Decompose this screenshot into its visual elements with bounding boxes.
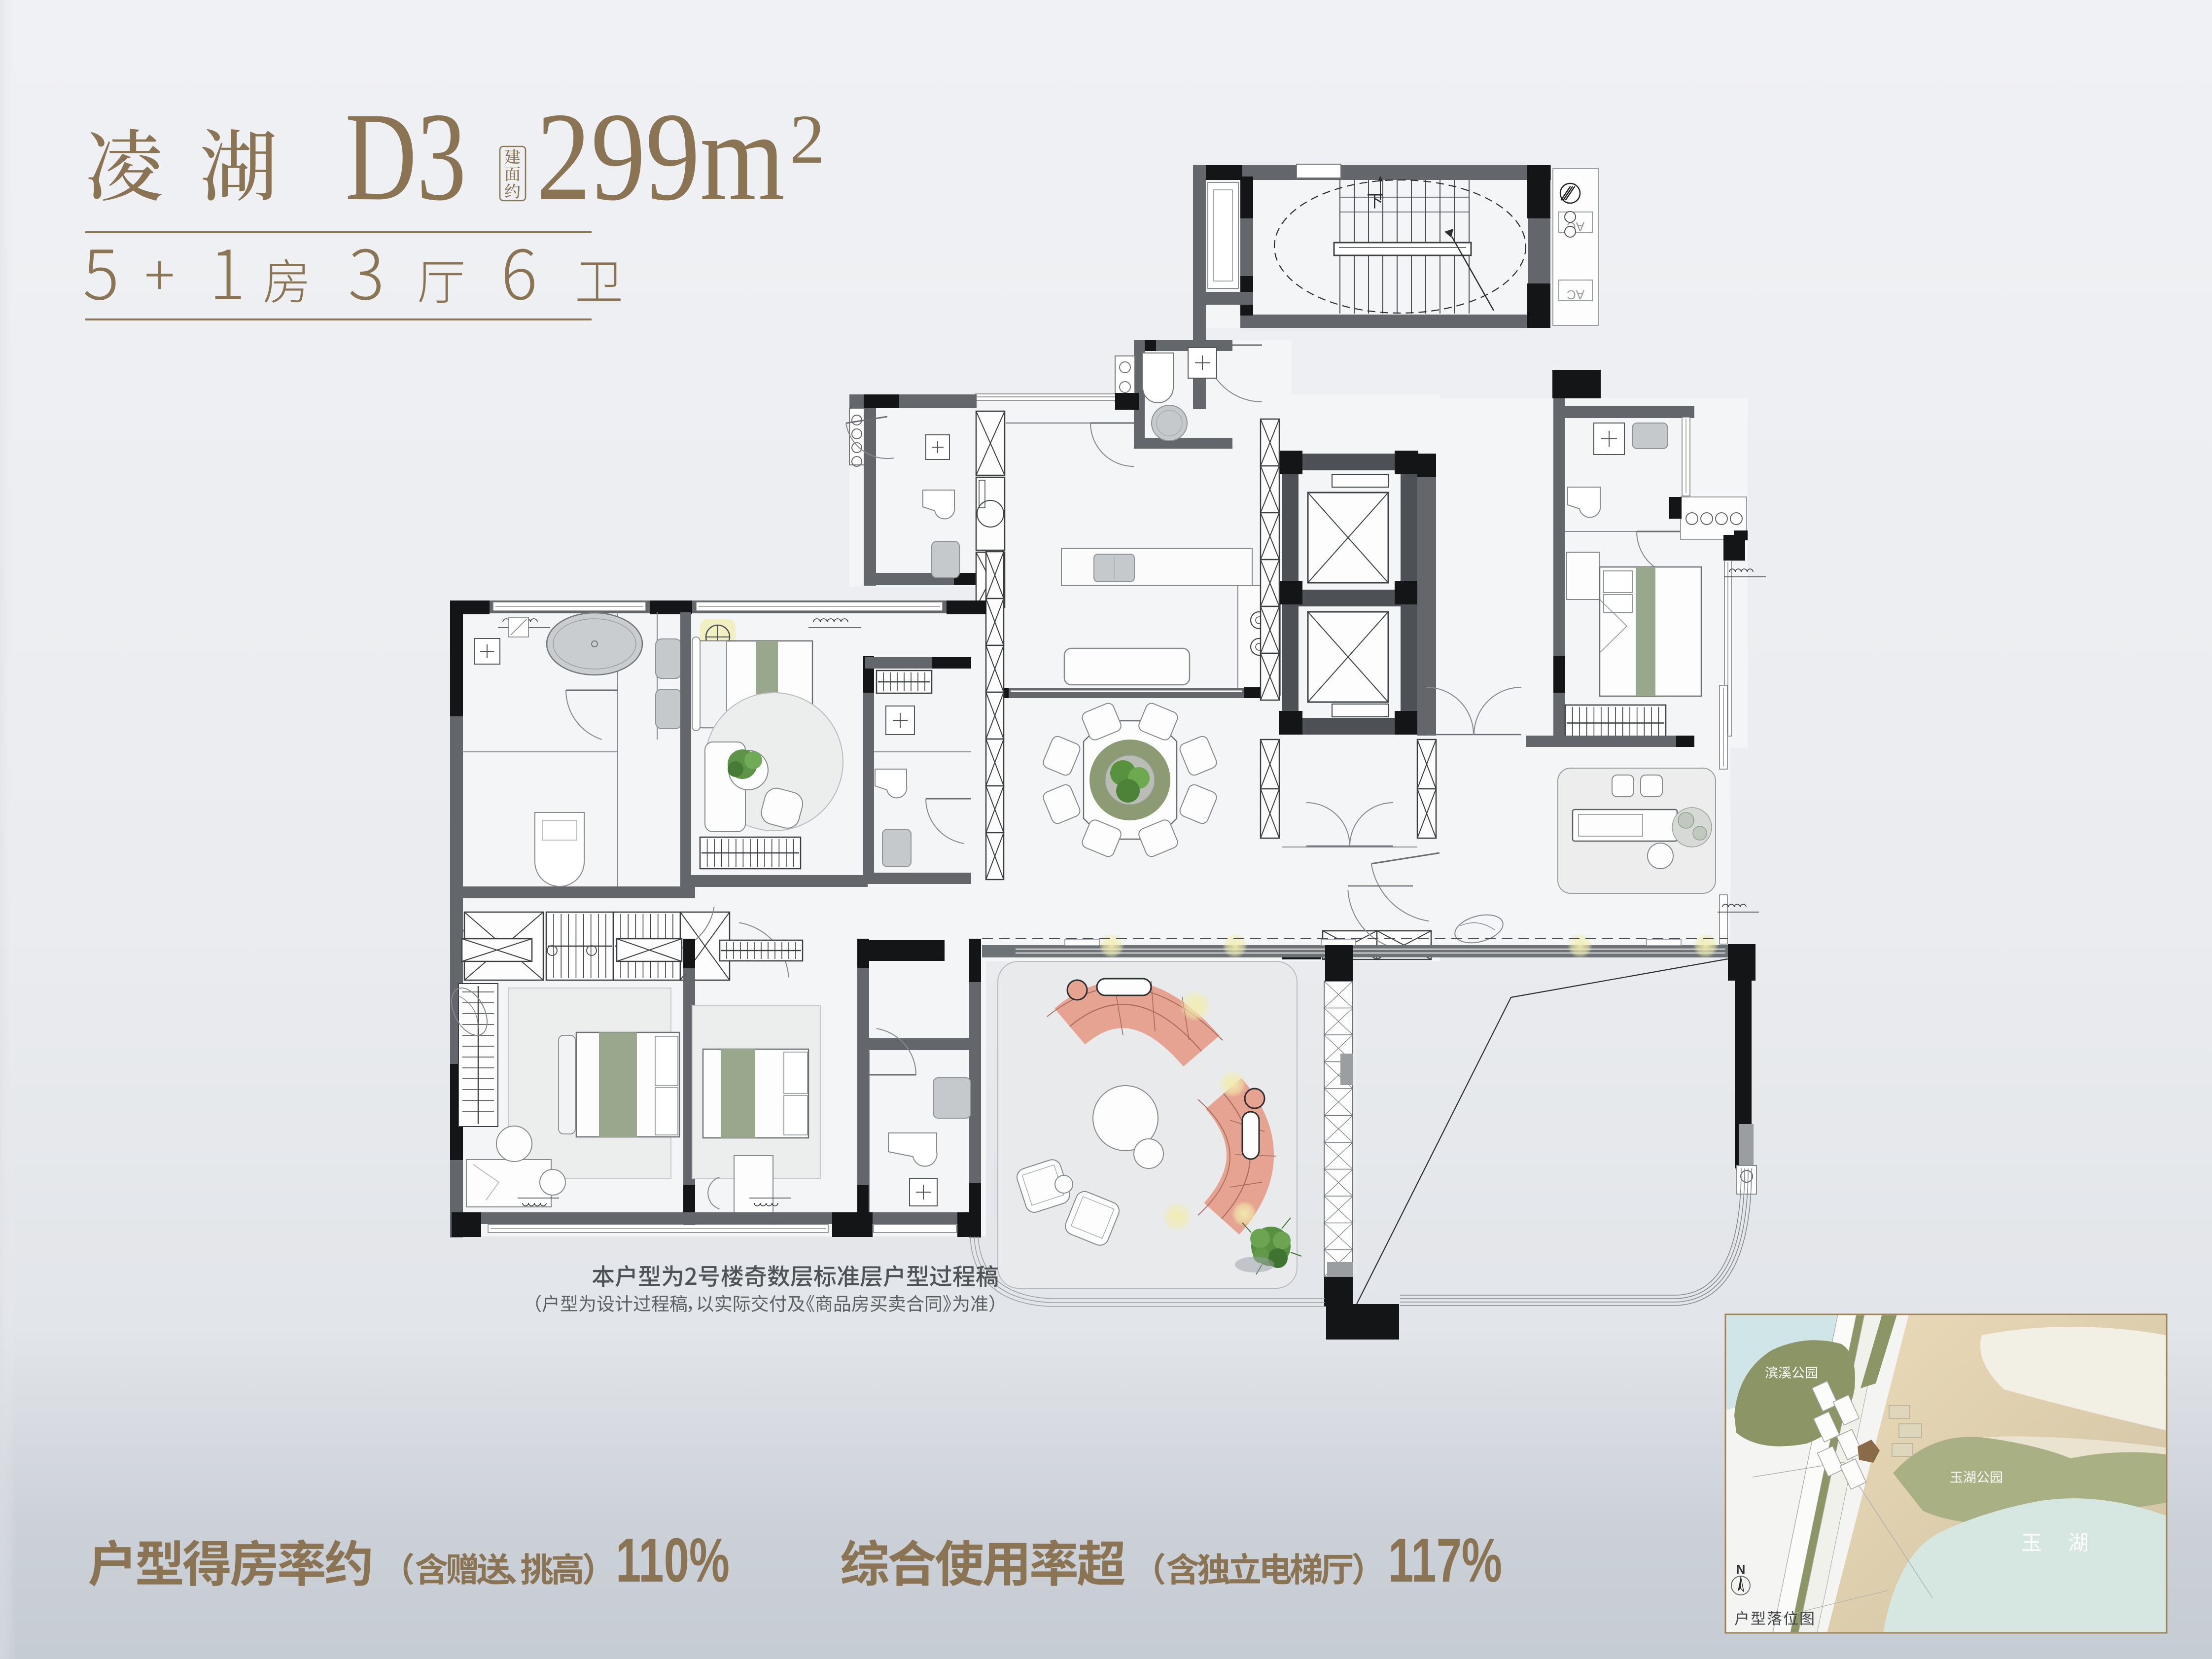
svg-text:110%: 110%	[616, 1525, 730, 1595]
svg-text:2: 2	[790, 100, 825, 178]
svg-text:N: N	[1736, 1562, 1746, 1577]
svg-text:299m: 299m	[536, 86, 785, 227]
svg-text:D3: D3	[345, 86, 466, 227]
svg-text:117%: 117%	[1388, 1525, 1502, 1595]
svg-text:AC: AC	[1567, 287, 1584, 302]
